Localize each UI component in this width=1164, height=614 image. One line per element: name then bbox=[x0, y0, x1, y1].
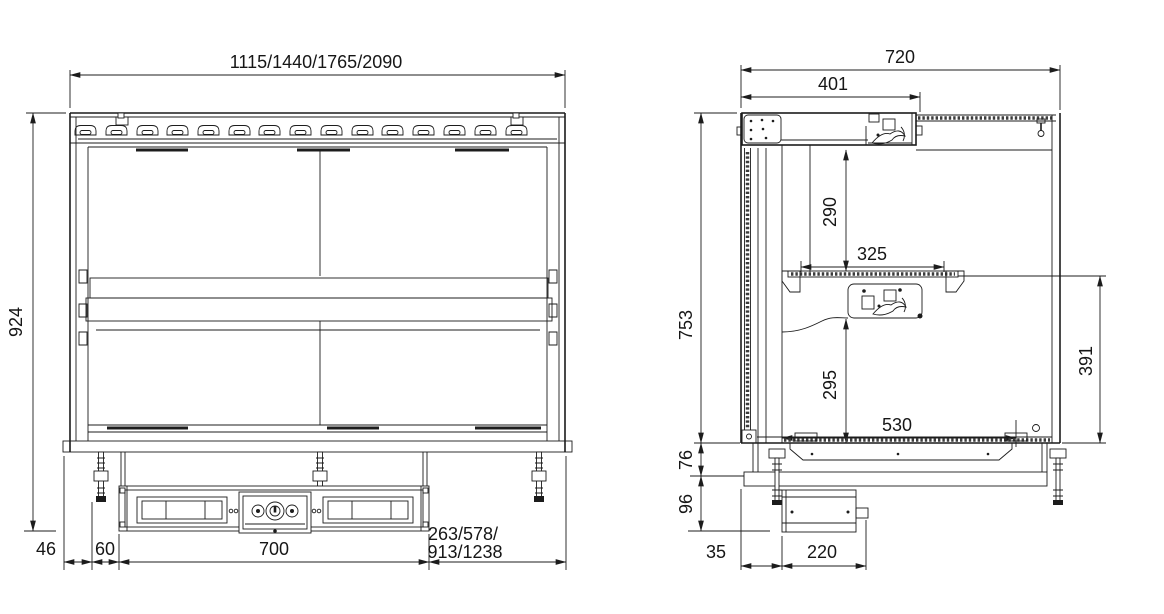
front-dim-700-label: 700 bbox=[259, 539, 289, 559]
side-top-housing bbox=[737, 113, 922, 145]
side-top-strip bbox=[916, 115, 1056, 150]
side-dim-under-shelf: 295 bbox=[820, 319, 846, 443]
side-view: 720 401 753 76 96 bbox=[676, 47, 1106, 570]
front-dim-60-label: 60 bbox=[95, 539, 115, 559]
technical-drawing: 1115/1440/1765/2090 924 bbox=[0, 0, 1164, 614]
side-dim-290-label: 290 bbox=[820, 197, 840, 227]
side-dim-753-label: 753 bbox=[676, 310, 696, 340]
shelf-fan-icon bbox=[873, 290, 906, 315]
side-dim-overall-depth: 720 bbox=[741, 47, 1060, 110]
front-dim-overall-height: 924 bbox=[6, 113, 66, 531]
hinge-bolt bbox=[1037, 119, 1045, 137]
side-dim-height-chain: 753 76 96 bbox=[676, 113, 770, 531]
front-dim-overall-width: 1115/1440/1765/2090 bbox=[70, 52, 565, 108]
bumper-rail bbox=[79, 270, 557, 345]
front-overall-height-label: 924 bbox=[6, 307, 26, 337]
duct-profile bbox=[782, 318, 848, 332]
side-dim-220-label: 220 bbox=[807, 542, 837, 562]
band-clip-right bbox=[511, 113, 523, 125]
foot-right bbox=[532, 452, 546, 502]
side-underbox bbox=[782, 490, 868, 532]
side-dim-96-label: 96 bbox=[676, 494, 696, 514]
side-dim-35-label: 35 bbox=[706, 542, 726, 562]
front-overall-width-label: 1115/1440/1765/2090 bbox=[230, 52, 403, 72]
band-clip-left bbox=[116, 113, 128, 125]
side-dim-shelf-depth: 325 bbox=[801, 244, 944, 272]
side-dim-shelf-to-base: 391 bbox=[958, 276, 1106, 443]
front-view: 1115/1440/1765/2090 924 bbox=[6, 52, 572, 570]
top-louver-band bbox=[75, 113, 527, 150]
back-panel bbox=[1052, 113, 1060, 443]
side-dim-housing-depth: 401 bbox=[741, 74, 920, 112]
front-dim-46-label: 46 bbox=[36, 539, 56, 559]
side-dim-391-label: 391 bbox=[1076, 346, 1096, 376]
side-dim-720-label: 720 bbox=[885, 47, 915, 67]
side-foot-rear bbox=[1050, 449, 1066, 505]
heated-shelf bbox=[782, 271, 964, 332]
side-dim-295-label: 295 bbox=[820, 370, 840, 400]
control-panel bbox=[229, 492, 321, 533]
side-dim-401-label: 401 bbox=[818, 74, 848, 94]
side-dim-76-label: 76 bbox=[676, 450, 696, 470]
foot-left bbox=[94, 452, 108, 502]
side-dim-325-label: 325 bbox=[857, 244, 887, 264]
front-dim-right-offset-line2: 913/1238 bbox=[427, 542, 502, 562]
panel-screw bbox=[273, 529, 277, 533]
front-dim-right-offset-line1: 263/578/ bbox=[428, 524, 498, 544]
front-body bbox=[70, 113, 565, 452]
bottom-tray bbox=[63, 425, 572, 452]
housing-fan-icon bbox=[872, 119, 905, 144]
warmer-underbox bbox=[119, 452, 429, 533]
side-dim-530-label: 530 bbox=[882, 415, 912, 435]
drawing-canvas: 1115/1440/1765/2090 924 bbox=[0, 0, 1164, 614]
side-dim-housing-to-shelf: 290 bbox=[820, 150, 846, 271]
